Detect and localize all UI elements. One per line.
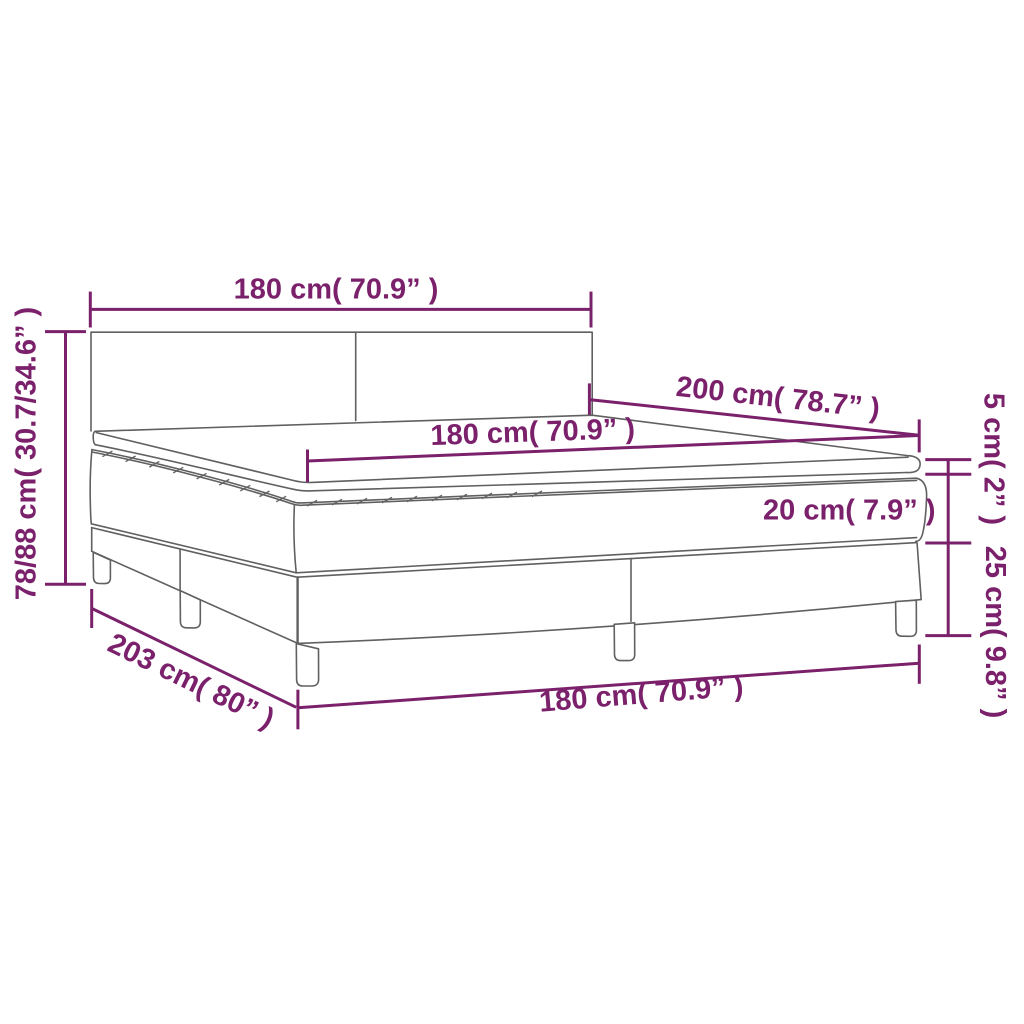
- svg-text:5 cm( 2” ): 5 cm( 2” ): [978, 393, 1010, 525]
- svg-text:180 cm( 70.9” ): 180 cm( 70.9” ): [234, 273, 439, 305]
- svg-text:25 cm( 9.8” ): 25 cm( 9.8” ): [979, 546, 1011, 718]
- svg-text:78/88 cm( 30.7/34.6” ): 78/88 cm( 30.7/34.6” ): [11, 307, 43, 600]
- svg-text:20 cm( 7.9” ): 20 cm( 7.9” ): [763, 494, 935, 526]
